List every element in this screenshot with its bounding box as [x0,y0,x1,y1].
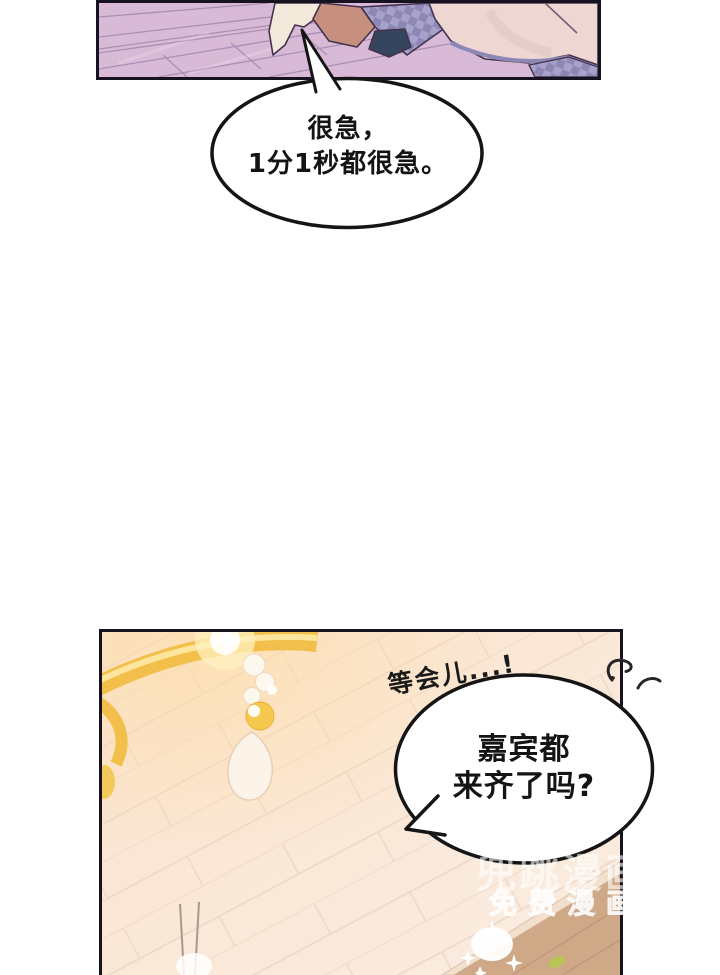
speech-text-top-line2: 1分1秒都很急。 [212,147,484,182]
speech-text-bottom: 嘉宾都 来齐了吗? [424,731,624,805]
speech-text-bottom-line1: 嘉宾都 [424,731,624,768]
speech-text-bottom-line2: 来齐了吗? [424,768,624,805]
watermark-line2: 免费漫画 [489,882,645,922]
speech-text-top-line1: 很急， [212,112,484,147]
comic-page: 很急， 1分1秒都很急。 嘉宾都 来齐了吗? 等会儿...! 兜跳漫画 免费漫画 [0,0,720,975]
palace-floor-scene [99,3,598,77]
panel-top [96,0,601,80]
speech-text-top: 很急， 1分1秒都很急。 [212,112,484,182]
gold-ball [246,702,274,730]
